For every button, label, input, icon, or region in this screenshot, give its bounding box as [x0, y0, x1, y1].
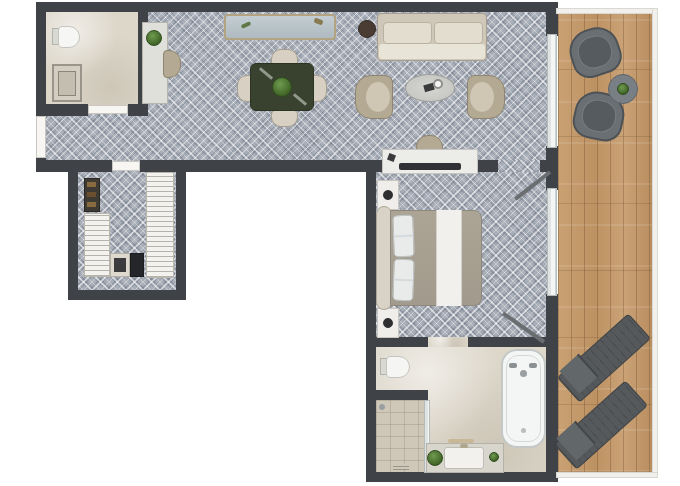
bedroom-door-threshold — [498, 160, 540, 172]
wall-guest-bath-bottom-right — [128, 104, 148, 116]
wall-guest-bath-bottom-left — [36, 104, 88, 116]
dining-chair-bottom — [271, 110, 298, 127]
wall-top — [36, 2, 558, 12]
coffee-table-mug — [433, 79, 443, 89]
wardrobe-left — [84, 213, 110, 277]
entry-door — [36, 116, 46, 158]
bathroom-door-threshold — [428, 337, 468, 347]
guest-toilet — [58, 26, 80, 48]
wall-cutout-top — [186, 160, 376, 172]
minibar — [130, 253, 144, 277]
sofa-cushion-left — [383, 22, 432, 44]
floor-plan-canvas — [0, 0, 680, 486]
sofa-side-table — [358, 20, 376, 38]
balcony-railing-right — [652, 8, 658, 478]
sofa-seat-edge — [379, 44, 485, 59]
vanity-towel — [448, 439, 474, 443]
wall-toilet-nook — [366, 390, 428, 400]
wall-bedroom-left — [366, 160, 376, 482]
wall-right-stub-low — [546, 294, 558, 342]
bathtub-drain — [521, 428, 526, 433]
closet-door — [112, 161, 140, 171]
guest-bathroom-door — [88, 105, 128, 114]
wall-bed-bath-right — [468, 337, 558, 347]
sofa-cushion-right — [434, 22, 483, 44]
shelf-item-3 — [87, 202, 96, 207]
balcony-railing-bottom — [556, 472, 658, 478]
tv-console — [382, 149, 478, 174]
armchair-right-seat — [470, 82, 494, 112]
balcony-plant — [617, 83, 629, 95]
dining-centerpiece-plant — [272, 77, 292, 97]
wall-closet-right — [176, 160, 186, 300]
shower-floor — [376, 400, 424, 473]
shower-head — [379, 404, 385, 410]
vanity-faucet — [460, 444, 468, 448]
wall-right-stub-mid — [546, 146, 558, 190]
bed-runner — [436, 210, 462, 306]
safe-door — [114, 258, 126, 272]
wall-right-stub-top — [546, 12, 558, 36]
vanity-sink — [444, 447, 484, 469]
shelf-item-2 — [87, 192, 96, 197]
bathtub-handle-left — [509, 363, 517, 368]
vanity-plant-small — [489, 452, 499, 462]
wall-closet-bottom — [68, 290, 186, 300]
bed-pillow-bottom — [392, 259, 414, 302]
vanity-plant-large — [427, 450, 443, 466]
tv — [399, 163, 461, 170]
armchair-left-seat — [366, 82, 390, 112]
shower-drain — [393, 464, 409, 470]
balcony-railing-top — [556, 8, 658, 14]
console-plant — [146, 30, 162, 46]
bedroom-sliding-window — [547, 188, 557, 296]
wardrobe-right — [146, 172, 174, 278]
bed-pillow-top — [392, 215, 414, 258]
wall-closet-left — [68, 160, 78, 300]
bathtub-handle-right — [529, 363, 537, 368]
bathtub-faucet — [520, 370, 527, 377]
wall-bed-bath-left — [366, 337, 428, 347]
wall-left-upper — [36, 2, 46, 116]
guest-shower-tray — [58, 71, 76, 96]
shelf-item-1 — [87, 182, 96, 187]
toilet — [386, 356, 410, 378]
living-room-sliding-window — [547, 34, 557, 148]
wall-right-bathroom — [546, 342, 558, 478]
wall-closet-top-left — [78, 160, 112, 172]
wall-bottom — [366, 472, 558, 482]
